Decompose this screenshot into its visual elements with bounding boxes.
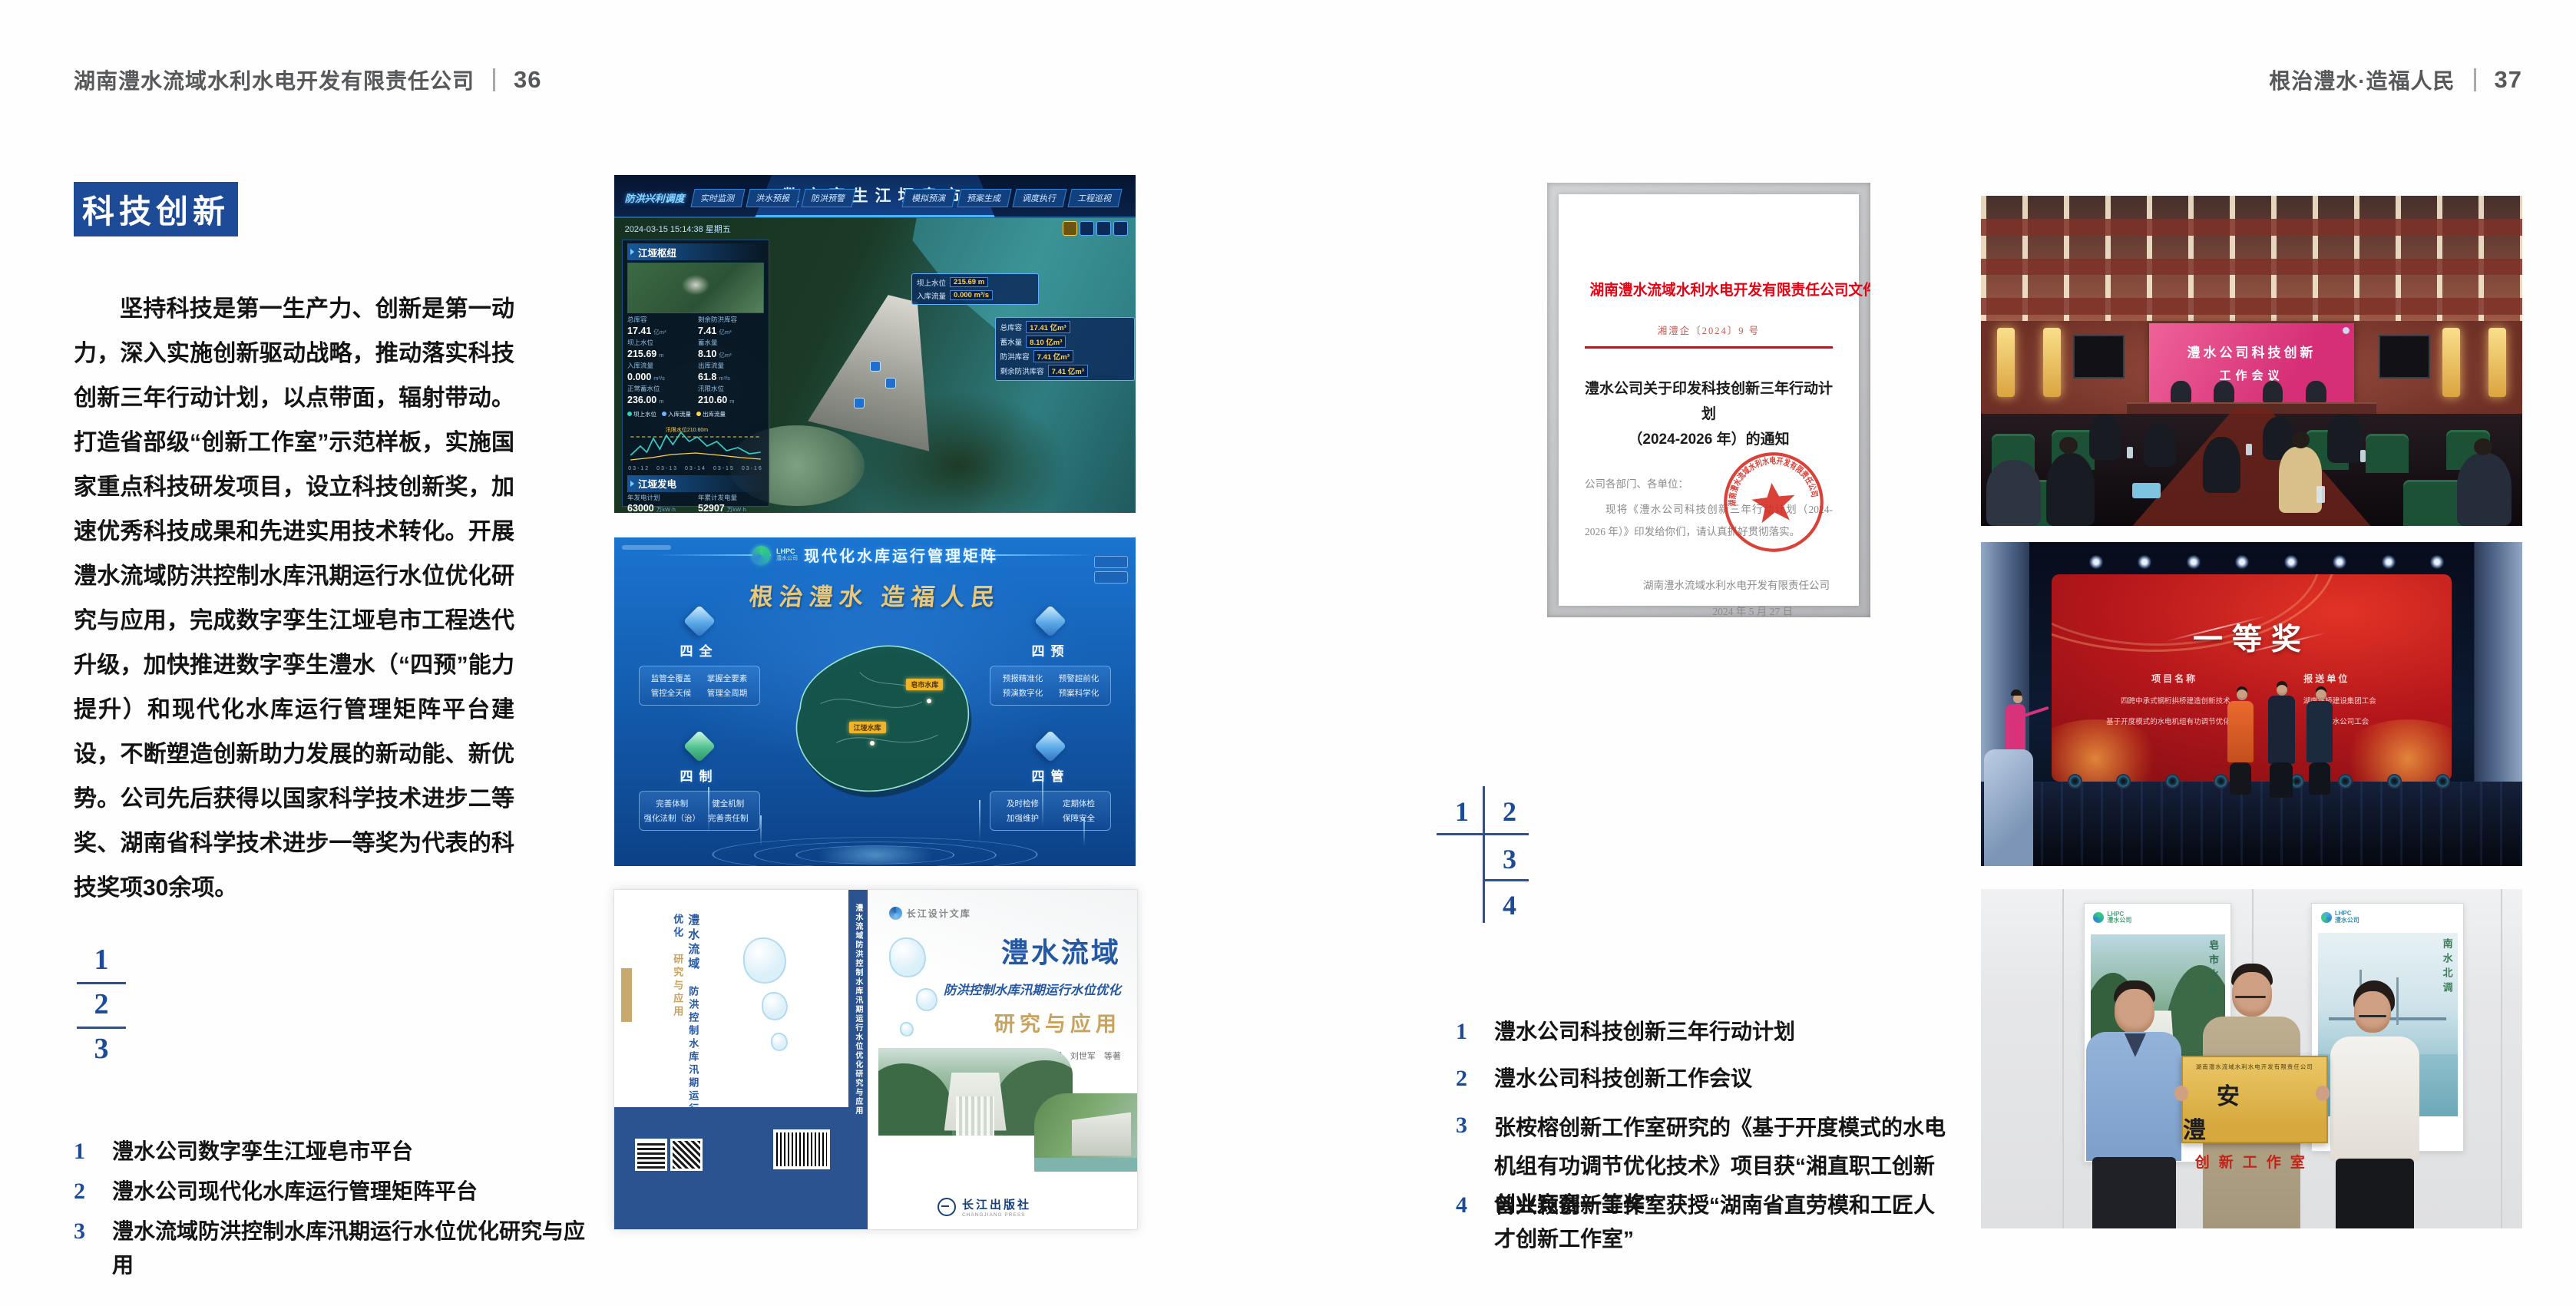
host-hair [2011,689,2022,696]
company-seal: 湖南澧水流域水利水电开发有限责任公司 [1715,444,1832,560]
corner-panel-sizhi: 四制 完善体制 健全机制 强化法制（治） 完善责任制 [638,735,761,831]
book-spine: 澧水流域防洪控制水库汛期运行水位优化研究与应用 [848,890,868,1229]
left-figure-index-2: 2 [84,987,118,1021]
plaque-header: 湖南澧水流域水利水电开发有限责任公司 [2196,1063,2313,1071]
logo-subtext: 澧水公司 [776,556,798,562]
reservoir-label-jiangya[interactable]: 江垭水库 [849,722,886,733]
left-figure-index-3: 3 [84,1032,118,1066]
left-caption-1: 1 澧水公司数字孪生江垭皂市平台 [74,1135,580,1169]
audience-person [2046,453,2095,526]
chair-back [2403,480,2463,526]
audience-person [2327,414,2363,464]
stat-cell: 汛限水位210.60m [698,385,764,407]
series-logo-icon [889,907,902,920]
hub-stats-grid: 总库容17.41亿m³ 剩余防洪库容7.41亿m³ 坝上水位215.69m 蓄水… [627,316,764,408]
caption-number: 1 [1456,1015,1494,1049]
corner-item: 监管全覆盖 [644,673,699,684]
right-page-header: 根治澧水·造福人民 37 [2269,64,2522,95]
logo-text: LHPC [776,548,798,556]
corner-item: 预报精准化 [995,673,1050,684]
document-page: 湖南澧水流域水利水电开发有限责任公司文件 湘澧企〔2024〕9 号 澧水公司关于… [1559,194,1859,606]
publisher-name: 长江出版社 [962,1196,1031,1212]
tab-realtime-monitoring[interactable]: 实时监测 [690,189,745,207]
stat-unit: m [729,398,734,405]
layers-icon[interactable] [1080,221,1094,236]
level-flow-chart: 汛限水位210.60m [627,420,764,465]
gate-marker[interactable] [854,398,865,408]
callout-label: 防洪库容 [1000,351,1030,362]
stat-cell: 总库容17.41亿m³ [627,316,693,338]
book-back-cover: 澧水流域 防洪控制水库汛期运行水位优化 研究与应用 [614,890,848,1229]
index-divider-line [77,982,126,984]
caption-number: 2 [74,1175,112,1208]
figure-digital-twin-platform: 数字孪生江垭皂市 防洪兴利调度 实时监测 洪水预报 防洪预警 模拟预演 预案生成… [614,175,1136,513]
section-title-badge: 科技创新 [74,182,238,236]
publisher-sub: CHANGJIANG PRESS [962,1212,1031,1218]
iso-cube-icon [1034,605,1066,637]
callout-value: 215.69 m [950,277,988,287]
callout-label: 蓄水量 [1000,336,1023,347]
screen-logo-dot [2343,327,2349,334]
tailwater [1034,1158,1137,1172]
legend-item: 出库流量 [703,411,726,418]
body-paragraph: 坚持科技是第一生产力、创新是第一动力，深入实施创新驱动战略，推动落实科技创新三年… [74,287,514,911]
qr-code [670,1139,703,1171]
water-bottle [2246,444,2252,455]
mountain-left [878,1063,952,1136]
close-button[interactable] [1094,556,1128,568]
stat-value: 63000 [627,503,654,513]
callout-value: 17.41 亿m³ [1026,321,1070,333]
stat-label: 正常蓄水位 [627,385,693,393]
stat-label: 总库容 [627,316,693,324]
presenter-trousers [2270,762,2293,798]
left-figure-index-1: 1 [84,943,118,977]
publisher-logo-icon [937,1198,956,1216]
right-figure-index-3: 3 [1493,843,1526,875]
dashboard-tabs-left: 实时监测 洪水预报 防洪预警 [693,189,858,207]
chair-back [2366,434,2409,474]
hub-panel-title: 江垭枢纽 [638,245,676,260]
caption-number: 1 [74,1135,112,1169]
dashboard-datetime: 2024-03-15 15:14:38 星期五 [625,223,731,235]
corner-panel-siquan: 四全 监管全覆盖 掌握全要素 管控全天候 管理全周期 [638,610,761,706]
corner-item: 健全机制 [702,798,755,809]
book-front-cover: 长江设计文库 澧水流域 防洪控制水库汛期运行水位优化 研究与应用 洪兴骏 沈坤民… [868,890,1137,1229]
gate-marker[interactable] [885,378,896,388]
stat-label: 剩余防洪库容 [698,316,764,324]
stat-value: 215.69 [627,349,656,359]
hand [2316,1086,2330,1101]
person-face [2115,989,2154,1033]
spine-title: 澧水流域防洪控制水库汛期运行水位优化研究与应用 [852,904,864,1202]
hub-panel-header: 江垭枢纽 [627,243,764,260]
book-title-sub: 防洪控制水库汛期运行水位优化 [944,980,1121,998]
winner-orange-uniform [2227,701,2254,762]
callout-value: 7.41 亿m³ [1048,365,1088,377]
audience-person-yellow-coat [2279,447,2322,513]
header-divider [493,68,495,91]
legend-item: 入库流量 [668,411,691,418]
wall-lamp [2442,328,2460,397]
stat-value: 236.00 [627,395,656,405]
stage-spotlight [2284,555,2298,569]
award-col-project: 项目名称 [2151,672,2197,685]
dashboard-tabs-right: 模拟预演 预案生成 调度执行 工程巡视 [904,189,1125,207]
figure-award-photo: 一等奖 项目名称 报送单位 四跨中承式钢桁拱桥建造创新技术 基于开度模式的水电机… [1981,542,2522,866]
corner-item: 管控全天候 [644,687,699,699]
audience-head [2292,431,2310,448]
host-lectern [1984,749,2032,866]
winner2-face [2316,689,2326,700]
ceiling-beam [1981,259,2522,276]
index-divider-line [77,1027,126,1029]
award-title: 一等奖 [2052,616,2452,659]
stat-cell: 年发电计划63000万kW·h [627,494,693,513]
stat-unit: 亿m³ [719,352,731,359]
calligraphy-slogan: 根治澧水 造福人民 [747,577,1002,612]
stat-label: 入库流量 [627,362,693,370]
winner2-suit [2306,701,2333,762]
water-drop-graphic [916,988,937,1011]
stat-unit: 亿m³ [719,329,731,336]
callout-label: 剩余防洪库容 [1000,365,1044,376]
corner-item: 掌握全要素 [700,673,755,684]
wall-tv-screen [2073,335,2125,379]
person-trousers [2092,1157,2176,1228]
ripple-core [795,845,955,864]
document-red-header: 湖南澧水流域水利水电开发有限责任公司文件 [1589,277,1827,299]
stat-cell: 坝上水位215.69m [627,339,693,361]
moving-head-light [2068,774,2082,789]
water-drop-graphic [900,1022,914,1037]
water-drop-graphic [762,992,788,1020]
wall-lamp [2043,328,2061,397]
index-vertical-line [1483,786,1485,923]
winner-trousers [2230,762,2251,795]
light-pillar [708,787,709,833]
flood-limit-annotation: 汛限水位210.60m [666,426,708,434]
light-pillar [979,800,980,840]
stat-unit: 万kW·h [656,506,676,513]
stage-spotlight [2382,555,2396,569]
host-pink-dress [2006,704,2025,756]
generation-panel-title: 江垭发电 [638,476,676,491]
lhpc-logo-icon [2321,912,2332,923]
publisher-row: 长江出版社 CHANGJIANG PRESS [937,1196,1031,1218]
figure-official-document: 湖南澧水流域水利水电开发有限责任公司文件 湘澧企〔2024〕9 号 澧水公司关于… [1547,183,1870,617]
light-pillar [760,815,762,846]
collapse-button[interactable] [1094,571,1128,584]
document-title: 澧水公司关于印发科技创新三年行动计划 （2024-2026 年）的通知 [1585,376,1833,453]
poster-logo-sub: 澧水公司 [2107,918,2131,924]
lhpc-logo-icon [2093,912,2104,923]
chart-x-axis: 03-12 03-13 03-14 03-15 03-16 [627,465,764,472]
barcode [773,1129,830,1169]
wall-seam [2501,889,2502,1228]
tab-simulation[interactable]: 模拟预演 [902,189,957,207]
book-title-main: 澧水流域 [944,931,1121,970]
map-callout-capacity: 总库容17.41 亿m³ 蓄水量8.10 亿m³ 防洪库容7.41 亿m³ 剩余… [995,317,1135,381]
qr-code [635,1139,667,1171]
corner-item: 定期体检 [1051,798,1106,809]
hub-stats-panel: 江垭枢纽 总库容17.41亿m³ 剩余防洪库容7.41亿m³ 坝上水位215.6… [622,240,769,507]
moving-head-light [2387,774,2402,789]
stage-floor [1981,782,2522,866]
light-pillar [1083,817,1085,846]
innovation-studio-plaque: 湖南澧水流域水利水电开发有限责任公司 安澧 创新工作室 [2181,1056,2328,1144]
person-face [2354,991,2391,1033]
basin-terrain-map [750,610,1000,813]
stat-label: 坝上水位 [627,339,693,347]
poster-logo-sub: 澧水公司 [2335,918,2359,924]
water-drop-graphic [743,937,786,984]
callout-value: 7.41 亿m³ [1033,350,1073,362]
iso-gear-icon [1034,730,1066,762]
map-callout-upstream: 坝上水位215.69 m 入库流量0.000 m³/s [911,273,1039,305]
person-white-tee [2330,1037,2419,1160]
stat-value: 52907 [698,503,725,513]
corner-item: 强化法制（治） [644,812,701,824]
stat-label: 汛限水位 [698,385,764,393]
stage-spotlight [2187,555,2201,569]
callout-value: 8.10 亿m³ [1026,336,1066,348]
screen-title-line1: 澧水公司科技创新 [2187,342,2316,361]
front-cover-small-photo [1034,1093,1137,1172]
wall-lamp [2488,328,2506,397]
stat-label: 出库流量 [698,362,764,370]
caption-text: 澧水公司现代化水库运行管理矩阵平台 [112,1175,478,1208]
moving-head-light [2214,774,2228,789]
generation-panel-header: 江垭发电 [627,475,764,492]
lhpc-logo-icon [752,546,770,564]
powerhouse [1072,1113,1131,1156]
stat-value: 7.41 [698,326,716,336]
right-figure-index-1: 1 [1445,795,1479,828]
left-page-number: 36 [514,66,541,94]
moving-head-light [2338,774,2353,789]
corner-item: 预案科学化 [1051,687,1106,699]
tab-flood-warning[interactable]: 防洪预警 [801,189,855,207]
caption-text: 澧水流域防洪控制水库汛期运行水位优化研究与应用 [112,1215,596,1282]
caption-number: 3 [74,1215,112,1282]
back-cover-blue-band [614,1107,848,1229]
stat-unit: m [659,398,663,405]
figure-meeting-photo: 澧水公司科技创新 工作会议 [1981,196,2522,526]
right-figure-index-2: 2 [1493,795,1526,828]
series-name: 长江设计文库 [907,907,971,920]
stat-label: 年发电计划 [627,494,693,502]
corner-title: 四管 [1031,765,1070,785]
legend-item: 坝上水位 [633,411,656,418]
gold-bokeh [2052,719,2164,782]
moving-head-light [2165,774,2180,789]
document-red-rule [1585,346,1833,349]
stat-label: 蓄水量 [698,339,764,347]
person-face [2232,972,2272,1017]
poster-logo: LHPC澧水公司 [2321,911,2359,924]
stat-unit: 亿m³ [653,329,666,336]
document-title-line1: 澧水公司关于印发科技创新三年行动计划 [1585,376,1833,428]
stat-value: 61.8 [698,372,716,382]
stat-unit: m³/s [719,375,730,382]
corner-item: 完善责任制 [702,812,755,824]
audience-person [2144,424,2176,467]
series-logo-row: 长江设计文库 [889,907,971,920]
water-drop-graphic [771,1033,788,1051]
iso-building-icon [683,730,715,762]
right-page-number: 37 [2495,66,2522,94]
corner-item: 预演数字化 [995,687,1050,699]
stat-value: 210.60 [698,395,727,405]
document-number: 湘澧企〔2024〕9 号 [1585,322,1833,337]
callout-label: 坝上水位 [917,277,946,288]
left-header-company: 湖南澧水流域水利水电开发有限责任公司 [74,64,475,95]
left-caption-3: 3 澧水流域防洪控制水库汛期运行水位优化研究与应用 [74,1215,596,1282]
reservoir-label-zaoshi[interactable]: 皂市水库 [906,679,943,690]
sail-icon [630,481,634,487]
back-title-3: 研究与应用 [672,954,683,1019]
right-caption-4: 4 曾兴颖创新工作室获授“湖南省直劳模和工匠人才创新工作室” [1456,1189,1955,1256]
back-title-1: 澧水流域 [686,914,699,972]
gold-bokeh [2340,719,2452,782]
callout-value: 0.000 m³/s [950,290,993,300]
caption-text: 曾兴颖创新工作室获授“湖南省直劳模和工匠人才创新工作室” [1494,1189,1955,1256]
audience-person [2457,453,2512,526]
alert-icon[interactable] [1063,221,1077,236]
caption-number: 4 [1456,1189,1494,1256]
matrix-title: 现代化水库运行管理矩阵 [804,544,998,566]
figure-book-cover: 澧水流域 防洪控制水库汛期运行水位优化 研究与应用 澧水流域防洪控制水库汛期运行… [613,889,1138,1230]
wall-seam [2062,889,2064,1228]
index-divider-line [1483,879,1529,881]
ceiling-beam [1981,298,2522,315]
winner2-trousers [2309,762,2330,795]
water-bottle [2360,450,2366,461]
stat-value: 0.000 [627,372,651,382]
caption-number: 2 [1456,1062,1494,1096]
corner-item: 管理全周期 [700,687,755,699]
stat-cell: 剩余防洪库容7.41亿m³ [698,316,764,338]
stat-cell: 正常蓄水位236.00m [627,385,693,407]
corner-panel-siguan: 四管 及时检修 定期体检 加强维护 保障安全 [989,735,1112,831]
corner-title: 四制 [680,765,719,785]
callout-label: 总库容 [1000,322,1023,332]
winner-face [2237,689,2247,700]
corner-item: 完善体制 [644,798,701,809]
spillway-jets [956,1096,995,1136]
award-col-unit: 报送单位 [2303,672,2349,685]
tab-flood-forecast[interactable]: 洪水预报 [746,189,800,207]
callout-label: 入库流量 [917,290,946,301]
generation-stats-grid: 年发电计划63000万kW·h 年累计发电量52907万kW·h 月累计发电量3… [627,494,764,513]
caption-text: 澧水公司科技创新三年行动计划 [1494,1015,1795,1049]
stage-spotlight [2089,555,2103,569]
corner-item: 预警超前化 [1051,673,1106,684]
stat-unit: 万kW·h [727,506,746,513]
document-signer: 湖南澧水流域水利水电开发有限责任公司 [1585,577,1833,592]
document-date: 2024 年 5 月 27 日 [1585,603,1833,617]
stat-cell: 出库流量61.8m³/s [698,362,764,384]
right-figure-index-4: 4 [1493,889,1526,921]
right-header-slogan: 根治澧水·造福人民 [2269,64,2455,95]
audience-person [1986,460,2041,526]
tab-plan-generation[interactable]: 预案生成 [957,189,1012,207]
presenter-face [2277,685,2287,696]
plaque-subtitle: 创新工作室 [2195,1151,2314,1172]
gate-marker[interactable] [870,361,881,372]
caption-text: 澧水公司数字孪生江垭皂市平台 [112,1135,413,1169]
poster-calligraphy: 南水北调 [2440,938,2455,997]
tissue-box [2132,483,2161,498]
moving-head-light [2116,774,2131,789]
corner-item: 保障安全 [1051,812,1106,824]
stage-spotlight [2333,555,2346,569]
glasses-icon [2359,1015,2386,1017]
stat-value: 17.41 [627,326,651,336]
corner-title: 四全 [680,640,719,660]
figure-matrix-platform: LHPC 澧水公司 现代化水库运行管理矩阵 根治澧水 造福人民 皂市水库 江垭水… [614,537,1136,866]
index-divider-line [1437,833,1529,835]
water-bottle [2127,447,2133,458]
tab-dispatch-execution[interactable]: 调度执行 [1013,189,1067,207]
poster-logo: LHPC澧水公司 [2093,911,2131,924]
magazine-spread: 湖南澧水流域水利水电开发有限责任公司 36 根治澧水·造福人民 37 科技创新 … [0,0,2576,1306]
caption-text: 澧水公司科技创新工作会议 [1494,1062,1752,1096]
stage-spotlight [2430,555,2444,569]
right-caption-1: 1 澧水公司科技创新三年行动计划 [1456,1015,1947,1049]
book-title-tail: 研究与应用 [944,1007,1121,1037]
left-caption-2: 2 澧水公司现代化水库运行管理矩阵平台 [74,1175,580,1208]
audience-person [2089,414,2121,460]
stat-cell: 入库流量0.000m³/s [627,362,693,384]
audience-head [2474,438,2492,455]
figure-plaque-photo: LHPC澧水公司 皂市水库 LHPC澧水公司 南水北调 [1981,889,2522,1228]
front-title-block: 澧水流域 防洪控制水库汛期运行水位优化 研究与应用 洪兴骏 沈坤民 鲁军 刘世军… [944,931,1121,1062]
moving-head-light [2435,774,2450,789]
stat-unit: m³/s [653,375,665,382]
matrix-header: LHPC 澧水公司 现代化水库运行管理矩阵 [752,544,998,566]
person-black-pants [2336,1159,2414,1228]
stat-value: 8.10 [698,349,716,359]
chart-legend: 坝上水位 入库流量 出库流量 [627,410,764,418]
back-cover-tan-bar [621,968,632,1023]
dam-photo-thumbnail[interactable] [627,263,764,313]
corner-panel-siyu: 四预 预报精准化 预警超前化 预演数字化 预案科学化 [989,610,1112,706]
glasses-icon [2235,996,2266,998]
locate-icon[interactable] [1096,221,1111,236]
plaque-name: 安澧 [2183,1077,2326,1145]
header-divider [2474,68,2476,91]
audience-person [2203,437,2240,493]
light-pillar [1042,776,1043,827]
stat-label: 年累计发电量 [698,494,764,502]
user-icon[interactable] [1113,221,1128,236]
tab-project-inspection[interactable]: 工程巡视 [1068,189,1123,207]
wall-lamp [1997,328,2015,397]
water-drop-graphic [889,937,926,977]
datetime-placeholder [622,545,671,550]
stat-unit: m [659,352,663,359]
iso-cube-icon [683,605,715,637]
dashboard-menu-label: 防洪兴利调度 [625,190,685,205]
corner-title: 四预 [1031,640,1070,660]
left-page-header: 湖南澧水流域水利水电开发有限责任公司 36 [74,64,542,95]
wall-tv-screen [2379,335,2430,379]
water-bottle [2316,486,2325,503]
ceiling-beam [1981,219,2522,236]
stat-cell: 蓄水量8.10亿m³ [698,339,764,361]
